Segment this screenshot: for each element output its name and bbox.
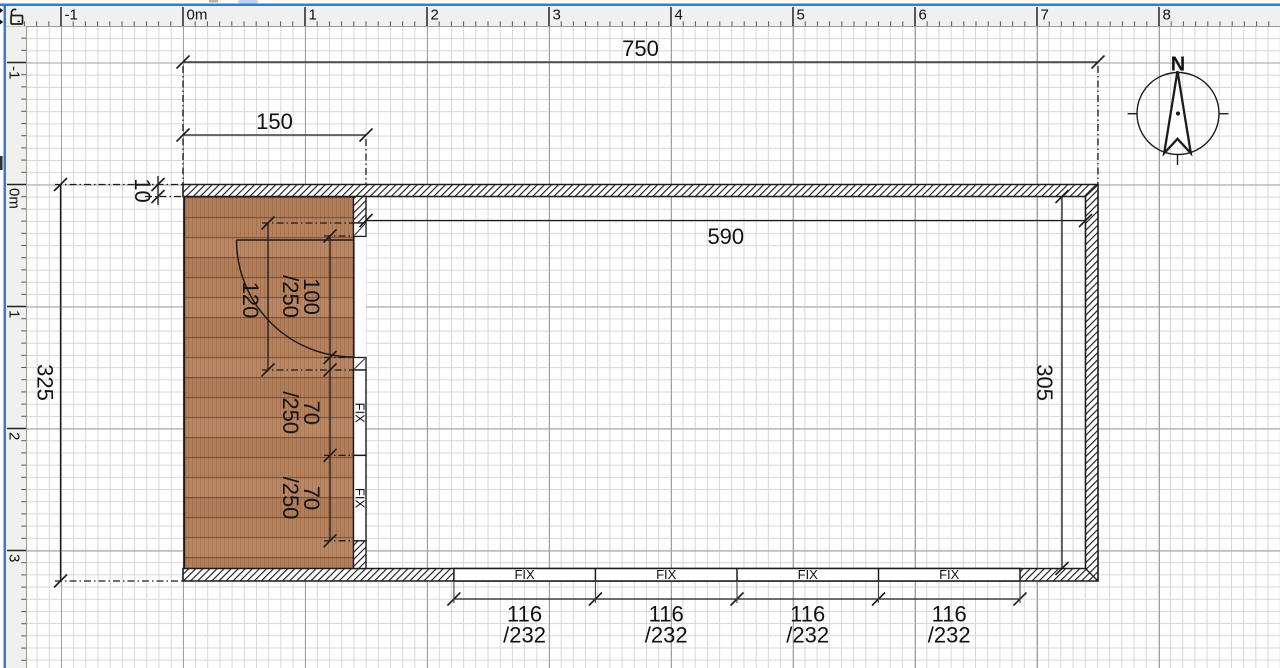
svg-text:150: 150 xyxy=(256,109,293,134)
svg-text:/232: /232 xyxy=(928,623,971,648)
svg-text:FIX: FIX xyxy=(656,567,677,582)
svg-text:100/250: 100/250 xyxy=(278,275,324,318)
svg-text:2: 2 xyxy=(6,432,23,440)
svg-text:N: N xyxy=(1171,54,1185,76)
svg-text:590: 590 xyxy=(707,224,744,249)
svg-text:0m: 0m xyxy=(6,188,23,209)
svg-text:3: 3 xyxy=(6,554,23,562)
svg-text:3: 3 xyxy=(553,7,561,24)
svg-text:/232: /232 xyxy=(503,623,546,648)
svg-text:1: 1 xyxy=(6,310,23,318)
svg-text:FIX: FIX xyxy=(798,567,819,582)
svg-text:6: 6 xyxy=(919,7,927,24)
svg-text:-1: -1 xyxy=(65,7,78,24)
svg-text:2: 2 xyxy=(431,7,439,24)
svg-text:10: 10 xyxy=(130,178,155,202)
svg-text:/232: /232 xyxy=(645,623,688,648)
svg-text:4: 4 xyxy=(675,7,683,24)
svg-text:FIX: FIX xyxy=(353,403,368,424)
svg-text:FIX: FIX xyxy=(353,488,368,509)
svg-text:120: 120 xyxy=(238,282,263,319)
svg-text:/232: /232 xyxy=(786,623,829,648)
svg-text:305: 305 xyxy=(1032,364,1057,401)
svg-text:5: 5 xyxy=(797,7,805,24)
svg-text:0m: 0m xyxy=(187,7,208,24)
svg-text:7: 7 xyxy=(1041,7,1049,24)
svg-text:8: 8 xyxy=(1163,7,1171,24)
svg-text:1: 1 xyxy=(309,7,317,24)
svg-text:FIX: FIX xyxy=(939,567,960,582)
svg-text:-1: -1 xyxy=(6,66,23,79)
svg-text:750: 750 xyxy=(622,36,659,61)
svg-text:FIX: FIX xyxy=(514,567,535,582)
svg-text:325: 325 xyxy=(33,364,58,401)
